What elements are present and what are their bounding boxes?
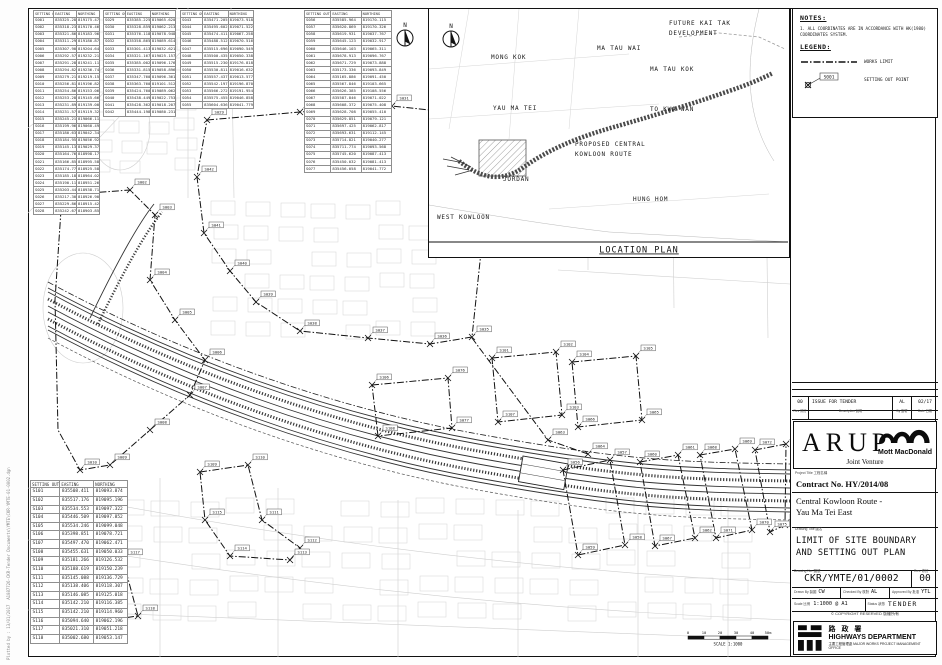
location-plan-title: LOCATION PLAN bbox=[599, 246, 679, 256]
svg-text:S067: S067 bbox=[663, 535, 673, 540]
svg-text:30: 30 bbox=[734, 630, 739, 635]
table-row: S114835142.210819116.385 bbox=[31, 600, 128, 609]
svg-text:S004: S004 bbox=[158, 269, 168, 274]
table-row: S105835534.246819099.048 bbox=[31, 522, 128, 531]
table-row: S107835497.470819062.471 bbox=[31, 540, 128, 549]
table-row: S013835231.898819139.008 bbox=[34, 102, 100, 109]
scale-value: 1:1000 @ A1 bbox=[813, 602, 847, 608]
table-row: S027835229.860818915.427 bbox=[34, 201, 100, 208]
setting-out-table-2: SETTING OUT POINT EASTING NORTHING S0298… bbox=[103, 10, 176, 117]
note-1: 1. ALL COORDINATES ARE IN ACCORDANCE WIT… bbox=[800, 26, 930, 39]
svg-text:SCALE 1:1000: SCALE 1:1000 bbox=[714, 642, 743, 647]
joint-venture-label: Joint Venture bbox=[794, 459, 936, 466]
table-row: S055835604.636819041.779 bbox=[181, 102, 254, 109]
table-row: S034835321.167819025.157 bbox=[104, 52, 176, 59]
table-row: S061835678.913819096.767 bbox=[305, 52, 392, 59]
svg-text:S066: S066 bbox=[586, 416, 596, 421]
svg-text:S040: S040 bbox=[238, 260, 248, 265]
setting-out-table-5: SETTING OUT POINT EASTING NORTHING S1018… bbox=[30, 480, 128, 644]
svg-text:S059: S059 bbox=[586, 544, 596, 549]
scale-status-row: Scale 比例1:1000 @ A1 Status 狀態 TENDER bbox=[792, 598, 938, 612]
svg-text:S101: S101 bbox=[500, 347, 510, 352]
svg-text:S108: S108 bbox=[386, 425, 396, 430]
svg-text:PROPOSED CENTRAL: PROPOSED CENTRAL bbox=[575, 141, 646, 148]
table-row: S001835325.281819175.476 bbox=[34, 17, 100, 24]
table-row: S019835145.134819029.378 bbox=[34, 144, 100, 151]
svg-text:S115: S115 bbox=[213, 509, 223, 514]
svg-text:S064: S064 bbox=[596, 443, 606, 448]
table-row: S022835174.778818925.588 bbox=[34, 165, 100, 172]
svg-text:S104: S104 bbox=[580, 351, 590, 356]
table-row: S048835500.435819050.338 bbox=[181, 52, 254, 59]
table-row: S004835311.293819180.872 bbox=[34, 38, 100, 45]
drawing-number: CKR/YMTE/01/0002 bbox=[792, 574, 911, 584]
table-row: S041835428.362819018.207 bbox=[104, 102, 176, 109]
table-row: S101835508.411819093.874 bbox=[31, 488, 128, 497]
table-row: S106835398.851819078.721 bbox=[31, 531, 128, 540]
table-row: S075835745.620819087.413 bbox=[305, 151, 392, 158]
setting-out-table-3: SETTING OUT POINT EASTING NORTHING S0438… bbox=[180, 10, 254, 109]
setting-out-table-1: SETTING OUT POINT EASTING NORTHING S0018… bbox=[33, 10, 100, 215]
table-row: S064835165.886819091.450 bbox=[305, 74, 392, 81]
table-row: S023835185.184818964.029 bbox=[34, 173, 100, 180]
works-limit-label: WORKS LIMIT bbox=[864, 60, 893, 65]
svg-text:S114: S114 bbox=[238, 545, 248, 550]
svg-text:S077: S077 bbox=[460, 417, 470, 422]
table-row: S104835446.509819097.852 bbox=[31, 514, 128, 523]
svg-text:S003: S003 bbox=[163, 204, 173, 209]
table-row: S031835376.118819078.948 bbox=[104, 31, 176, 38]
svg-text:S076: S076 bbox=[456, 367, 466, 372]
svg-text:S001: S001 bbox=[824, 75, 835, 81]
table-row: S045835474.411819067.258 bbox=[181, 31, 254, 38]
table-row: S051835557.437819013.577 bbox=[181, 74, 254, 81]
table-row: S016835199.961819060.496 bbox=[34, 123, 100, 130]
table-row: S070835629.851819079.121 bbox=[305, 116, 392, 123]
table-row: S030835328.859819062.213 bbox=[104, 24, 176, 31]
table-row: S026835217.305818926.903 bbox=[34, 194, 100, 201]
table-row: S058835619.931819037.767 bbox=[305, 31, 392, 38]
svg-text:WEST KOWLOON: WEST KOWLOON bbox=[437, 214, 490, 221]
table-row: S010835256.814819196.821 bbox=[34, 81, 100, 88]
svg-text:S031: S031 bbox=[400, 95, 410, 100]
location-plan-inset: N MONG KOKMA TAU WAIFUTURE KAI TAKDEVELO… bbox=[428, 8, 790, 258]
svg-text:S038: S038 bbox=[308, 320, 318, 325]
svg-text:MA TAU KOK: MA TAU KOK bbox=[650, 66, 694, 73]
table-row: S014835231.577819119.320 bbox=[34, 109, 100, 116]
mott-macdonald-logo: Mott MacDonald bbox=[878, 428, 932, 456]
svg-text:S008: S008 bbox=[158, 419, 168, 424]
svg-text:S002: S002 bbox=[138, 179, 148, 184]
svg-text:S112: S112 bbox=[308, 537, 318, 542]
table-row: S118835002.680819053.147 bbox=[31, 634, 128, 643]
table-row: S021835166.858818995.588 bbox=[34, 158, 100, 165]
table-row: S040835438.449819022.753 bbox=[104, 95, 176, 102]
project-title-line1: Central Kowloon Route - bbox=[796, 496, 934, 507]
table-row: S008835294.827819236.749 bbox=[34, 67, 100, 74]
svg-text:S009: S009 bbox=[118, 454, 128, 459]
table-row: S018835184.952819056.921 bbox=[34, 137, 100, 144]
table-row: S036835331.815819058.896 bbox=[104, 67, 176, 74]
svg-text:S056: S056 bbox=[571, 459, 581, 464]
svg-text:S042: S042 bbox=[205, 166, 215, 171]
scale-bar: 01020304050mSCALE 1:1000 bbox=[687, 630, 772, 647]
svg-text:S111: S111 bbox=[270, 509, 280, 514]
table-row: S038835363.760819101.512 bbox=[104, 81, 176, 88]
table-row: S050835530.811819016.632 bbox=[181, 67, 254, 74]
plot-stamp: Plotted by : 13/01/2017 A1087726-CKR-Ten… bbox=[6, 467, 12, 660]
inset-background-map bbox=[429, 9, 788, 242]
svg-text:S061: S061 bbox=[686, 444, 696, 449]
svg-text:S105: S105 bbox=[644, 345, 654, 350]
drawing-title-section: Drawing Title 圖名 LIMIT OF SITE BOUNDARY … bbox=[792, 527, 938, 562]
svg-text:S117: S117 bbox=[131, 549, 141, 554]
table-row: S059835645.123819032.917 bbox=[305, 38, 392, 45]
svg-text:S102: S102 bbox=[564, 341, 574, 346]
table-row: S037835347.760819096.361 bbox=[104, 74, 176, 81]
table-row: S115835142.210819114.960 bbox=[31, 609, 128, 618]
status-value: TENDER bbox=[888, 601, 917, 608]
table-row: S044835495.602819071.522 bbox=[181, 24, 254, 31]
copyright-line: © COPYRIGHT RESERVED 版權所有 bbox=[792, 612, 938, 617]
table-row: S012835253.289819145.669 bbox=[34, 95, 100, 102]
table-row: S065835567.846819103.665 bbox=[305, 81, 392, 88]
table-row: S039835424.760819089.062 bbox=[104, 88, 176, 95]
svg-text:S113: S113 bbox=[298, 549, 308, 554]
table-row: S017835180.633819042.345 bbox=[34, 130, 100, 137]
table-row: S043835471.205819073.918 bbox=[181, 17, 254, 24]
table-row: S102835517.176819095.196 bbox=[31, 496, 128, 505]
svg-text:10: 10 bbox=[702, 630, 707, 635]
svg-text:MONG KOK: MONG KOK bbox=[491, 54, 526, 61]
svg-text:40: 40 bbox=[750, 630, 755, 635]
table-row: S113835146.085819125.018 bbox=[31, 591, 128, 600]
svg-text:S036: S036 bbox=[438, 333, 448, 338]
drawing-number-row: Drawing No. 圖號 CKR/YMTE/01/0002 Rev. 修訂 … bbox=[792, 570, 938, 588]
table-row: S109835181.266819126.532 bbox=[31, 557, 128, 566]
table-row: S020835164.767818998.179 bbox=[34, 151, 100, 158]
drawing-title: LIMIT OF SITE BOUNDARY AND SETTING OUT P… bbox=[792, 533, 938, 562]
north-arrow-icon: N bbox=[397, 22, 413, 46]
svg-text:S063: S063 bbox=[556, 429, 566, 434]
svg-text:S058: S058 bbox=[633, 534, 643, 539]
table-row: S111835145.088819136.729 bbox=[31, 574, 128, 583]
project-title-line2: Yau Ma Tei East bbox=[796, 507, 934, 518]
svg-text:S035: S035 bbox=[480, 326, 490, 331]
table-row: S002835318.237819170.467 bbox=[34, 24, 100, 31]
svg-text:S062: S062 bbox=[703, 527, 713, 532]
table-row: S054835575.455819046.858 bbox=[181, 95, 254, 102]
svg-text:HUNG HOM: HUNG HOM bbox=[633, 196, 668, 203]
table-row: S066835626.385819108.556 bbox=[305, 88, 392, 95]
setting-out-point-label: SETTING OUT POINT bbox=[864, 78, 909, 83]
svg-text:S103: S103 bbox=[570, 404, 580, 409]
contract-number: Contract No. HY/2014/08 bbox=[792, 477, 938, 493]
table-row: S074835711.774819093.568 bbox=[305, 144, 392, 151]
svg-text:S037: S037 bbox=[376, 327, 386, 332]
table-row: S057835620.869819170.326 bbox=[305, 24, 392, 31]
svg-text:S039: S039 bbox=[264, 291, 274, 296]
table-row: S047835515.696819090.549 bbox=[181, 45, 254, 52]
table-row: S006835292.574819232.216 bbox=[34, 52, 100, 59]
table-row: S071835697.425819062.817 bbox=[305, 123, 392, 130]
table-row: S062835671.729819073.888 bbox=[305, 60, 392, 67]
svg-text:S118: S118 bbox=[146, 605, 156, 610]
table-row: S073835714.821819040.277 bbox=[305, 137, 392, 144]
svg-text:S110: S110 bbox=[256, 454, 266, 459]
setting-out-point-symbol: S001 bbox=[800, 71, 858, 89]
table-row: S025835203.447818938.714 bbox=[34, 187, 100, 194]
north-arrow-icon: N bbox=[443, 23, 459, 47]
table-row: S029835385.225819065.620 bbox=[104, 17, 176, 24]
table-row: S067835587.846819071.022 bbox=[305, 95, 392, 102]
svg-text:S070: S070 bbox=[760, 519, 770, 524]
svg-text:S071: S071 bbox=[724, 527, 734, 532]
table-row: S003835321.864819183.968 bbox=[34, 31, 100, 38]
svg-text:YAU MA TEI: YAU MA TEI bbox=[493, 105, 537, 112]
svg-text:DEVELOPMENT: DEVELOPMENT bbox=[669, 30, 718, 37]
table-row: S056835585.964819170.115 bbox=[305, 17, 392, 24]
panel-divider bbox=[790, 8, 791, 657]
table-row: S049835515.230819176.818 bbox=[181, 60, 254, 67]
district-labels: MONG KOKMA TAU WAIFUTURE KAI TAKDEVELOPM… bbox=[437, 20, 731, 221]
table-row: S052835542.197819196.870 bbox=[181, 81, 254, 88]
notes-panel: NOTES: 1. ALL COORDINATES ARE IN ACCORDA… bbox=[792, 8, 938, 118]
svg-text:S069: S069 bbox=[743, 438, 753, 443]
project-section: Project Title 工程名稱 Contract No. HY/2014/… bbox=[792, 471, 938, 519]
table-row: S117835021.310819051.218 bbox=[31, 626, 128, 635]
table-row: S063835173.336819093.849 bbox=[305, 67, 392, 74]
table-row: S035835385.002819096.176 bbox=[104, 60, 176, 67]
table-row: S077835456.058819041.772 bbox=[305, 165, 392, 172]
svg-text:S065: S065 bbox=[650, 409, 660, 414]
svg-text:S006: S006 bbox=[213, 349, 223, 354]
table-row: S046835488.512819070.516 bbox=[181, 38, 254, 45]
table-row: S076835450.032819081.413 bbox=[305, 158, 392, 165]
notes-heading: NOTES: bbox=[800, 15, 930, 23]
table-row: S009835279.219819219.158 bbox=[34, 74, 100, 81]
svg-text:S060: S060 bbox=[648, 451, 658, 456]
table-row: S110835188.619819150.239 bbox=[31, 565, 128, 574]
works-limit-symbol bbox=[800, 59, 858, 65]
table-row: S112835138.406819118.307 bbox=[31, 583, 128, 592]
table-row: S069835628.708819055.410 bbox=[305, 109, 392, 116]
svg-text:S010: S010 bbox=[88, 459, 98, 464]
highways-department-box: 路 政 署 HIGHWAYS DEPARTMENT 主要工程管理處 MAJOR … bbox=[793, 621, 937, 655]
svg-text:S106: S106 bbox=[380, 374, 390, 379]
table-row: S116835094.640819062.196 bbox=[31, 617, 128, 626]
svg-text:S068: S068 bbox=[708, 444, 718, 449]
highways-department-logo bbox=[798, 625, 824, 651]
table-row: S024835190.112818951.260 bbox=[34, 180, 100, 187]
svg-text:S041: S041 bbox=[212, 222, 222, 227]
consultant-logo-box: ARUP Mott MacDonald Joint Venture bbox=[793, 421, 937, 469]
legend-heading: LEGEND: bbox=[800, 44, 930, 52]
svg-text:S005: S005 bbox=[183, 309, 193, 314]
svg-text:S007: S007 bbox=[198, 384, 208, 389]
table-row: S007835291.288819241.112 bbox=[34, 60, 100, 67]
table-row: S103835534.553819097.322 bbox=[31, 505, 128, 514]
table-row: S032835358.865819089.614 bbox=[104, 38, 176, 45]
svg-text:S109: S109 bbox=[208, 461, 218, 466]
svg-text:50m: 50m bbox=[765, 630, 773, 635]
revision-row: 00 ISSUE FOR TENDER AL 02/17 bbox=[792, 396, 938, 411]
svg-text:S029: S029 bbox=[215, 109, 225, 114]
svg-text:KOWLOON ROUTE: KOWLOON ROUTE bbox=[575, 151, 632, 158]
svg-text:TO KWA WAN: TO KWA WAN bbox=[650, 106, 694, 113]
svg-text:N: N bbox=[449, 23, 453, 30]
table-row: S068835608.372819075.408 bbox=[305, 102, 392, 109]
table-row: S060835646.103819065.311 bbox=[305, 45, 392, 52]
svg-text:0: 0 bbox=[687, 630, 690, 635]
svg-text:20: 20 bbox=[718, 630, 723, 635]
table-row: S072835693.631819112.145 bbox=[305, 130, 392, 137]
table-row: S005835307.905819204.641 bbox=[34, 45, 100, 52]
svg-text:S107: S107 bbox=[506, 411, 516, 416]
table-row: S011835254.868819153.064 bbox=[34, 88, 100, 95]
svg-text:S075: S075 bbox=[778, 521, 788, 526]
revision-number: 00 bbox=[912, 574, 938, 584]
table-row: S042835444.198819080.231 bbox=[104, 109, 176, 116]
svg-text:MA TAU WAI: MA TAU WAI bbox=[597, 45, 641, 52]
table-row: S053835566.272819191.954 bbox=[181, 88, 254, 95]
svg-text:JORDAN: JORDAN bbox=[503, 176, 529, 183]
svg-text:FUTURE KAI TAK: FUTURE KAI TAK bbox=[669, 20, 731, 27]
svg-text:S057: S057 bbox=[618, 449, 628, 454]
table-row: S028835242.671818903.851 bbox=[34, 208, 100, 215]
table-row: S033835301.413819032.621 bbox=[104, 45, 176, 52]
svg-text:N: N bbox=[403, 22, 407, 29]
table-row: S015835245.218819066.112 bbox=[34, 116, 100, 123]
setting-out-table-4: SETTING OUT POINT EASTING NORTHING S0568… bbox=[304, 10, 392, 173]
revision-header-row: Rev 修訂 Description 說明 By 簽署 Date 日期 bbox=[792, 410, 938, 420]
svg-text:S072: S072 bbox=[763, 439, 773, 444]
table-row: S108835455.631819050.033 bbox=[31, 548, 128, 557]
